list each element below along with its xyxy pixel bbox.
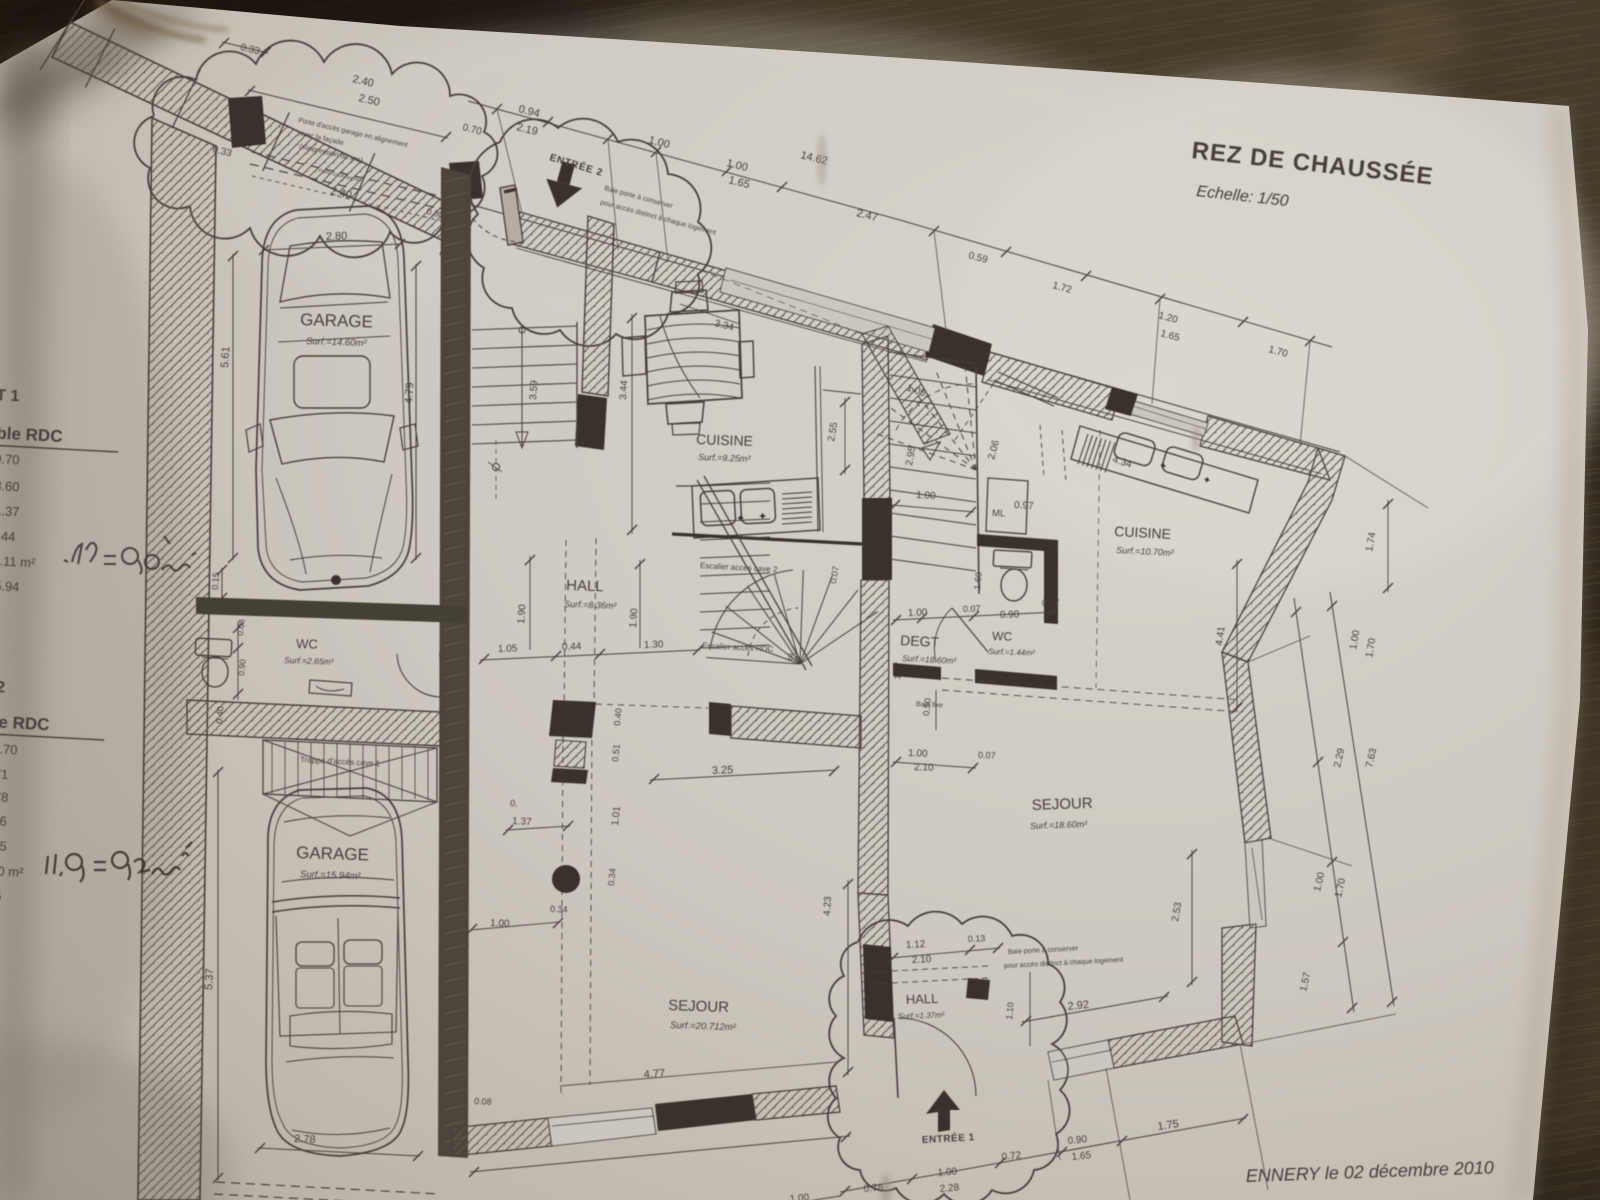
svg-text:ML: ML [992,508,1006,519]
svg-text:1.00: 1.00 [916,490,936,502]
svg-text:65: 65 [0,838,7,854]
svg-text:CUISINE: CUISINE [696,431,753,449]
svg-text:0.07: 0.07 [978,750,996,761]
svg-text:✦: ✦ [758,511,767,523]
svg-text:Surf.=9.25m²: Surf.=9.25m² [698,452,752,464]
svg-text:Surf.=1.37m²: Surf.=1.37m² [898,1010,945,1021]
svg-text:1.37: 1.37 [0,503,20,519]
svg-text:1.00: 1.00 [789,1192,810,1200]
svg-text:2.11 m²: 2.11 m² [0,553,36,570]
svg-text:5.37: 5.37 [203,968,216,990]
svg-text:3.25: 3.25 [712,764,734,777]
svg-text:Surf.=1.44m²: Surf.=1.44m² [988,647,1035,658]
svg-text:0.51: 0.51 [610,744,622,762]
svg-text:36: 36 [0,813,7,829]
svg-text:5.94: 5.94 [0,578,20,594]
svg-text:2.44: 2.44 [0,528,16,544]
svg-text:WC: WC [296,636,318,652]
svg-text:20 m²: 20 m² [0,863,24,880]
svg-text:HALL: HALL [566,577,604,595]
svg-text:0.40: 0.40 [612,708,624,726]
svg-text:0.44: 0.44 [562,641,582,653]
svg-text:SEJOUR: SEJOUR [1032,795,1094,814]
svg-text:Surf.=8.36m²: Surf.=8.36m² [564,599,618,611]
svg-text:4.77: 4.77 [643,1068,665,1081]
svg-text:GARAGE: GARAGE [300,310,373,332]
svg-text:0.50: 0.50 [921,698,933,716]
svg-text:0.97: 0.97 [1014,500,1034,512]
svg-text:1.00: 1.00 [908,748,928,760]
svg-text:1.10: 1.10 [1004,1002,1016,1020]
svg-text:1.65: 1.65 [1071,1150,1092,1163]
svg-text:2.80: 2.80 [326,230,348,243]
svg-text:Surf.=14.60m²: Surf.=14.60m² [306,336,368,349]
svg-text:1.01: 1.01 [610,805,623,826]
svg-text:.71: .71 [0,766,9,782]
svg-text:3.59: 3.59 [528,380,540,401]
svg-text:0.07: 0.07 [963,603,981,614]
svg-text:1.90: 1.90 [628,608,640,629]
svg-text:.78: .78 [0,789,9,805]
svg-text:0.07: 0.07 [1042,597,1060,608]
svg-text:Surf.=20.712m²: Surf.=20.712m² [670,1020,737,1033]
svg-text:bitable RDC: bitable RDC [0,422,63,446]
svg-text:SEJOUR: SEJOUR [668,997,730,1016]
svg-text:T 1: T 1 [0,387,20,405]
svg-text:0.34: 0.34 [550,904,568,915]
svg-text:1.00: 1.00 [937,1166,958,1179]
svg-text:0.40: 0.40 [214,706,226,724]
svg-text:Surf.=2.65m²: Surf.=2.65m² [284,655,335,667]
svg-text:1.60: 1.60 [972,572,984,590]
svg-text:0.70: 0.70 [0,741,18,757]
svg-text:✦: ✦ [736,513,745,525]
svg-text:WC: WC [992,629,1013,644]
svg-text:0.08: 0.08 [235,618,247,636]
svg-text:GARAGE: GARAGE [296,843,369,865]
svg-text:1.05: 1.05 [498,643,518,655]
svg-text:0.72: 0.72 [1001,1150,1022,1163]
svg-text:1.90: 1.90 [516,604,528,625]
svg-text:0.34: 0.34 [606,868,618,886]
svg-text:0.90: 0.90 [1067,1134,1088,1147]
svg-text:0.08: 0.08 [474,1096,492,1107]
svg-text:1.37: 1.37 [512,816,532,828]
svg-text:1.12: 1.12 [906,939,926,951]
svg-text:1.30: 1.30 [644,639,664,651]
svg-text:0.70: 0.70 [0,451,20,467]
svg-text:Surf.=15.94m²: Surf.=15.94m² [300,869,362,882]
svg-text:0.78: 0.78 [863,1182,884,1195]
svg-text:83: 83 [788,652,798,662]
svg-text:0.13: 0.13 [968,933,986,944]
svg-text:2: 2 [0,679,6,696]
svg-text:1.00: 1.00 [908,607,928,619]
svg-text:0.90: 0.90 [1000,609,1020,621]
svg-text:Surf.=18.60m²: Surf.=18.60m² [1030,819,1089,831]
svg-text:8.60: 8.60 [0,478,20,494]
svg-text:0.: 0. [510,798,518,808]
svg-text:4.79: 4.79 [403,382,416,404]
svg-text:table RDC: table RDC [0,711,50,734]
svg-text:3.44: 3.44 [618,380,630,401]
svg-text:5.61: 5.61 [219,346,232,368]
svg-text:4.23: 4.23 [822,896,834,916]
svg-text:2.78: 2.78 [294,1133,316,1146]
svg-text:2.28: 2.28 [939,1182,960,1195]
svg-text:CUISINE: CUISINE [1114,523,1172,542]
svg-text:0.15: 0.15 [210,572,221,590]
svg-text:HALL: HALL [906,991,939,1007]
